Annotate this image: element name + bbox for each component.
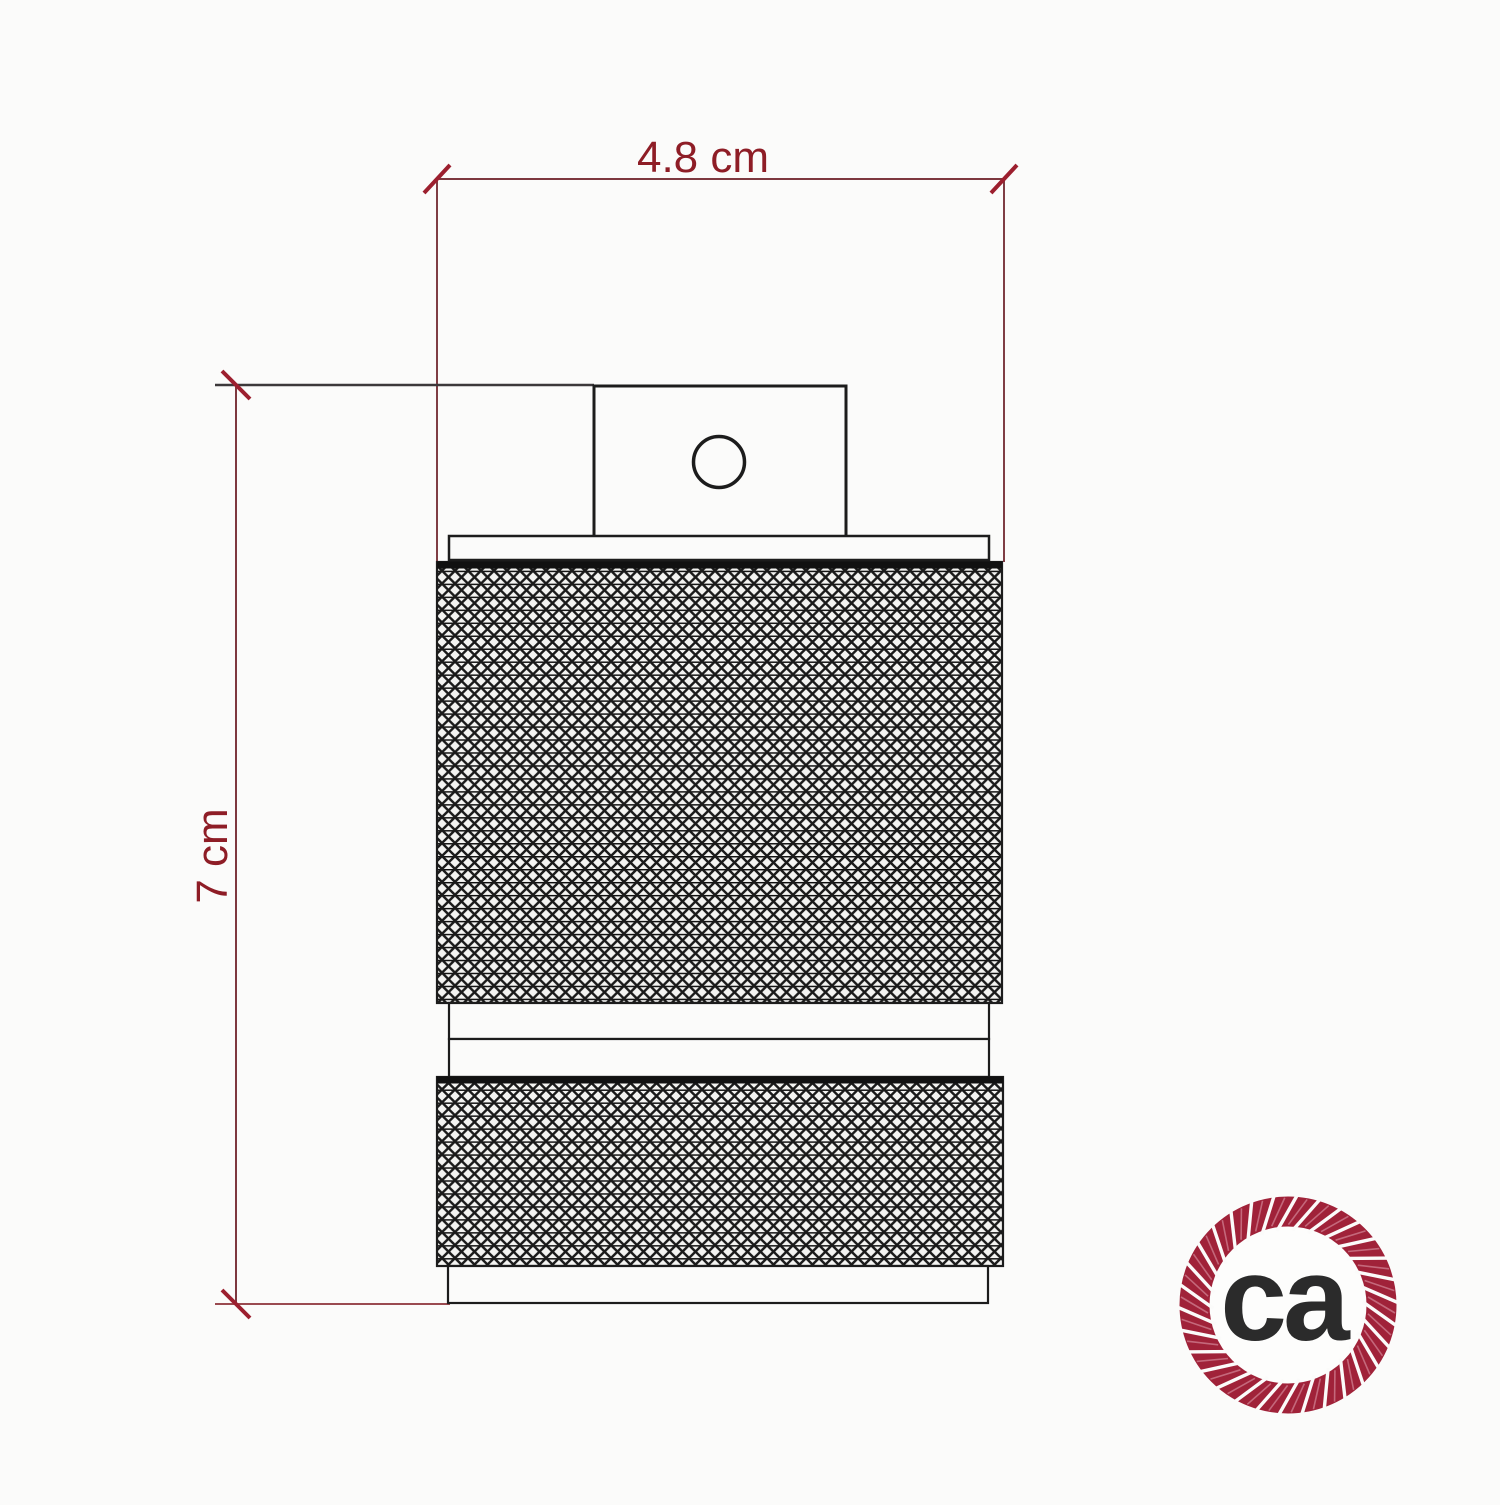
svg-text:4.8 cm: 4.8 cm (637, 133, 769, 182)
svg-text:ca: ca (1220, 1232, 1351, 1366)
svg-text:7 cm: 7 cm (188, 808, 237, 903)
